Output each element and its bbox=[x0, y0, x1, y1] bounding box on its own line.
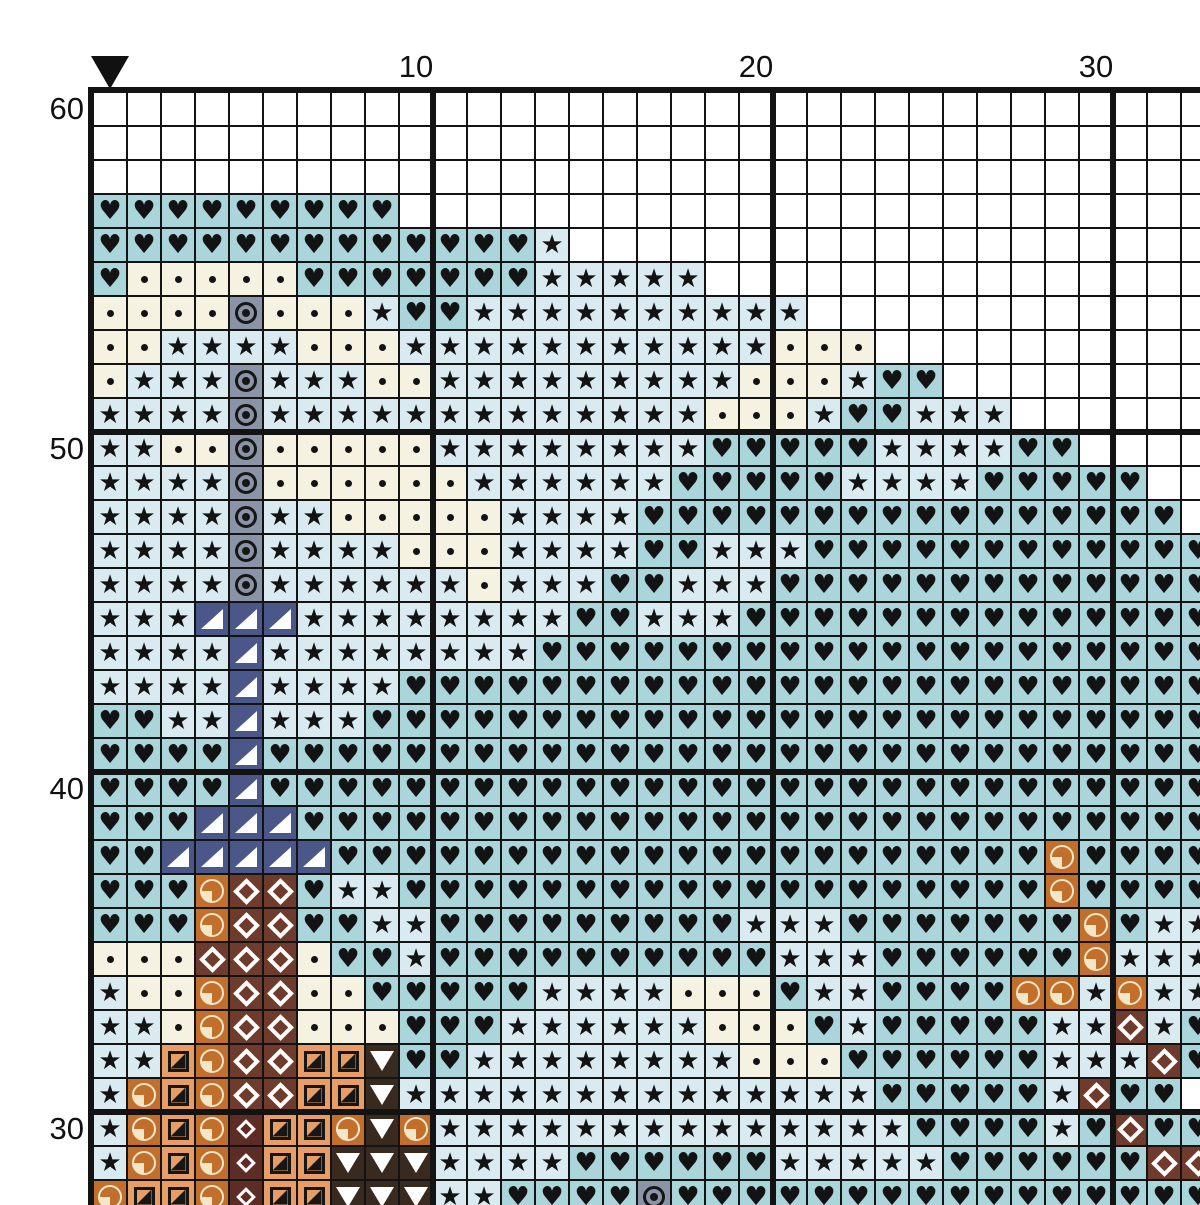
dot-symbol bbox=[209, 310, 216, 317]
stitch-cell-star: ★ bbox=[468, 603, 500, 635]
stitch-cell-quarter-pie bbox=[332, 1113, 364, 1145]
star-symbol: ★ bbox=[574, 467, 597, 499]
stitch-cell-dot bbox=[162, 433, 194, 465]
stitch-cell-star: ★ bbox=[94, 569, 126, 601]
stitch-cell-blank bbox=[536, 195, 568, 227]
stitch-cell-star: ★ bbox=[536, 433, 568, 465]
star-symbol: ★ bbox=[132, 569, 155, 601]
stitch-cell-star: ★ bbox=[94, 467, 126, 499]
heart-symbol: ♥ bbox=[1016, 773, 1039, 805]
heart-symbol: ♥ bbox=[1186, 1113, 1200, 1145]
heart-symbol: ♥ bbox=[98, 841, 121, 873]
heart-symbol: ♥ bbox=[132, 909, 155, 941]
stitch-cell-quarter-pie bbox=[1012, 977, 1044, 1009]
heart-symbol: ♥ bbox=[880, 943, 903, 975]
stitch-cell-heart: ♥ bbox=[366, 977, 398, 1009]
stitch-cell-star: ★ bbox=[808, 1113, 840, 1145]
stitch-cell-blank bbox=[1114, 161, 1146, 193]
stitch-cell-star: ★ bbox=[536, 535, 568, 567]
star-symbol: ★ bbox=[234, 331, 257, 363]
heart-symbol: ♥ bbox=[1152, 1113, 1175, 1145]
stitch-cell-heart: ♥ bbox=[434, 875, 466, 907]
stitch-cell-heart: ♥ bbox=[740, 637, 772, 669]
heart-symbol: ♥ bbox=[914, 773, 937, 805]
stitch-cell-star: ★ bbox=[434, 569, 466, 601]
stitch-cell-star: ★ bbox=[128, 501, 160, 533]
heart-symbol: ♥ bbox=[642, 637, 665, 669]
stitch-cell-heart: ♥ bbox=[1148, 671, 1180, 703]
stitch-cell-blank bbox=[1182, 127, 1200, 159]
stitch-cell-star: ★ bbox=[468, 433, 500, 465]
stitch-cell-heart: ♥ bbox=[128, 841, 160, 873]
star-symbol: ★ bbox=[302, 569, 325, 601]
heart-symbol: ♥ bbox=[914, 1079, 937, 1111]
stitch-cell-dot bbox=[230, 263, 262, 295]
heart-symbol: ♥ bbox=[948, 943, 971, 975]
stitch-cell-heart: ♥ bbox=[1114, 841, 1146, 873]
heart-symbol: ♥ bbox=[914, 1113, 937, 1145]
star-symbol: ★ bbox=[98, 433, 121, 465]
heart-symbol: ♥ bbox=[710, 705, 733, 737]
heart-symbol: ♥ bbox=[778, 841, 801, 873]
corner-triangle-symbol bbox=[235, 779, 257, 799]
star-symbol: ★ bbox=[1118, 1045, 1141, 1077]
stitch-cell-heart: ♥ bbox=[1114, 637, 1146, 669]
stitch-cell-heart: ♥ bbox=[944, 739, 976, 771]
stitch-cell-blank bbox=[808, 127, 840, 159]
dot-symbol bbox=[855, 344, 862, 351]
stitch-cell-heart: ♥ bbox=[910, 977, 942, 1009]
quarter-pie-symbol bbox=[200, 1049, 224, 1073]
star-symbol: ★ bbox=[540, 1147, 563, 1179]
stitch-cell-blank bbox=[706, 195, 738, 227]
heart-symbol: ♥ bbox=[132, 841, 155, 873]
dot-symbol bbox=[787, 412, 794, 419]
stitch-cell-star: ★ bbox=[944, 399, 976, 431]
stitch-cell-heart: ♥ bbox=[332, 807, 364, 839]
stitch-cell-small-diamond-outline bbox=[230, 1181, 262, 1205]
heart-symbol: ♥ bbox=[336, 195, 359, 227]
stitch-cell-heart: ♥ bbox=[1182, 773, 1200, 805]
stitch-cell-heart: ♥ bbox=[502, 739, 534, 771]
stitch-cell-heart: ♥ bbox=[978, 1181, 1010, 1205]
stitch-cell-blank bbox=[910, 263, 942, 295]
stitch-cell-star: ★ bbox=[162, 501, 194, 533]
stitch-cell-blank bbox=[434, 195, 466, 227]
stitch-cell-star: ★ bbox=[128, 569, 160, 601]
dot-symbol bbox=[753, 1058, 760, 1065]
stitch-cell-heart: ♥ bbox=[1046, 1147, 1078, 1179]
stitch-cell-heart: ♥ bbox=[128, 195, 160, 227]
stitch-cell-dot bbox=[400, 467, 432, 499]
stitch-cell-blank bbox=[298, 127, 330, 159]
stitch-cell-heart: ♥ bbox=[434, 229, 466, 261]
star-symbol: ★ bbox=[948, 433, 971, 465]
stitch-cell-star: ★ bbox=[162, 331, 194, 363]
stitch-cell-heart: ♥ bbox=[774, 501, 806, 533]
heart-symbol: ♥ bbox=[472, 1011, 495, 1043]
star-symbol: ★ bbox=[200, 399, 223, 431]
stitch-cell-heart: ♥ bbox=[1182, 875, 1200, 907]
stitch-cell-blank bbox=[706, 263, 738, 295]
heart-symbol: ♥ bbox=[642, 1147, 665, 1179]
stitch-cell-corner-triangle bbox=[230, 637, 262, 669]
stitch-cell-heart: ♥ bbox=[1046, 705, 1078, 737]
stitch-cell-blank bbox=[842, 93, 874, 125]
stitch-cell-star: ★ bbox=[536, 1113, 568, 1145]
stitch-cell-heart: ♥ bbox=[434, 705, 466, 737]
stitch-cell-blank bbox=[706, 229, 738, 261]
stitch-cell-heart: ♥ bbox=[842, 909, 874, 941]
heart-symbol: ♥ bbox=[234, 229, 257, 261]
star-symbol: ★ bbox=[574, 1079, 597, 1111]
stitch-cell-quarter-pie bbox=[128, 1079, 160, 1111]
stitch-cell-diamond-outline bbox=[264, 977, 296, 1009]
stitch-cell-star: ★ bbox=[400, 399, 432, 431]
stitch-cell-dot bbox=[128, 943, 160, 975]
stitch-cell-blank bbox=[978, 229, 1010, 261]
heart-symbol: ♥ bbox=[438, 263, 461, 295]
heart-symbol: ♥ bbox=[608, 1181, 631, 1205]
stitch-cell-star: ★ bbox=[536, 365, 568, 397]
star-symbol: ★ bbox=[540, 501, 563, 533]
star-symbol: ★ bbox=[506, 569, 529, 601]
heart-symbol: ♥ bbox=[948, 569, 971, 601]
stitch-cell-heart: ♥ bbox=[468, 263, 500, 295]
heart-symbol: ♥ bbox=[166, 773, 189, 805]
heart-symbol: ♥ bbox=[710, 841, 733, 873]
stitch-cell-star: ★ bbox=[298, 705, 330, 737]
heart-symbol: ♥ bbox=[574, 909, 597, 941]
stitch-cell-small-diamond-outline bbox=[230, 1113, 262, 1145]
stitch-cell-dot bbox=[808, 331, 840, 363]
stitch-cell-diamond-outline bbox=[230, 1011, 262, 1043]
heart-symbol: ♥ bbox=[880, 807, 903, 839]
stitch-cell-star: ★ bbox=[774, 943, 806, 975]
heart-symbol: ♥ bbox=[676, 1181, 699, 1205]
heart-symbol: ♥ bbox=[744, 1181, 767, 1205]
heart-symbol: ♥ bbox=[574, 841, 597, 873]
stitch-cell-heart: ♥ bbox=[842, 739, 874, 771]
stitch-cell-heart: ♥ bbox=[332, 841, 364, 873]
dot-symbol bbox=[413, 548, 420, 555]
diamond-outline-symbol bbox=[233, 1014, 260, 1041]
heart-symbol: ♥ bbox=[948, 807, 971, 839]
stitch-cell-heart: ♥ bbox=[774, 705, 806, 737]
heart-symbol: ♥ bbox=[608, 705, 631, 737]
quarter-pie-symbol bbox=[1016, 981, 1040, 1005]
heart-symbol: ♥ bbox=[1084, 841, 1107, 873]
dot-symbol bbox=[447, 480, 454, 487]
star-symbol: ★ bbox=[370, 569, 393, 601]
stitch-cell-star: ★ bbox=[536, 1147, 568, 1179]
stitch-cell-heart: ♥ bbox=[774, 433, 806, 465]
heart-symbol: ♥ bbox=[744, 433, 767, 465]
star-symbol: ★ bbox=[914, 433, 937, 465]
stitch-cell-star: ★ bbox=[434, 1113, 466, 1145]
star-symbol: ★ bbox=[132, 1011, 155, 1043]
star-symbol: ★ bbox=[404, 331, 427, 363]
stitch-cell-dot bbox=[332, 977, 364, 1009]
heart-symbol: ♥ bbox=[438, 705, 461, 737]
stitch-cell-blank bbox=[910, 93, 942, 125]
dot-symbol bbox=[345, 310, 352, 317]
stitch-cell-blank bbox=[604, 195, 636, 227]
star-symbol: ★ bbox=[506, 1045, 529, 1077]
heart-symbol: ♥ bbox=[506, 977, 529, 1009]
heart-symbol: ♥ bbox=[1084, 807, 1107, 839]
stitch-cell-star: ★ bbox=[740, 535, 772, 567]
star-symbol: ★ bbox=[506, 603, 529, 635]
stitch-cell-star: ★ bbox=[298, 535, 330, 567]
stitch-cell-heart: ♥ bbox=[638, 875, 670, 907]
heart-symbol: ♥ bbox=[132, 195, 155, 227]
stitch-cell-heart: ♥ bbox=[604, 569, 636, 601]
stitch-cell-star: ★ bbox=[1046, 1045, 1078, 1077]
heart-symbol: ♥ bbox=[404, 263, 427, 295]
stitch-cell-blank bbox=[910, 297, 942, 329]
star-symbol: ★ bbox=[846, 467, 869, 499]
stitch-cell-heart: ♥ bbox=[876, 807, 908, 839]
stitch-cell-blank bbox=[910, 127, 942, 159]
stitch-cell-heart: ♥ bbox=[94, 705, 126, 737]
stitch-cell-blank bbox=[1148, 467, 1180, 499]
heart-symbol: ♥ bbox=[1016, 467, 1039, 499]
stitch-cell-blank bbox=[196, 93, 228, 125]
stitch-cell-dot bbox=[298, 943, 330, 975]
stitch-cell-star: ★ bbox=[536, 1045, 568, 1077]
stitch-cell-star: ★ bbox=[128, 1045, 160, 1077]
heart-symbol: ♥ bbox=[1050, 501, 1073, 533]
star-symbol: ★ bbox=[642, 433, 665, 465]
stitch-cell-heart: ♥ bbox=[604, 1147, 636, 1179]
star-symbol: ★ bbox=[574, 1011, 597, 1043]
quarter-pie-symbol bbox=[200, 1117, 224, 1141]
heart-symbol: ♥ bbox=[608, 637, 631, 669]
stitch-cell-star: ★ bbox=[536, 331, 568, 363]
stitch-cell-blank bbox=[1046, 195, 1078, 227]
stitch-cell-heart: ♥ bbox=[400, 739, 432, 771]
stitch-cell-heart: ♥ bbox=[1080, 501, 1112, 533]
stitch-cell-heart: ♥ bbox=[944, 603, 976, 635]
stitch-cell-star: ★ bbox=[842, 943, 874, 975]
stitch-cell-blank bbox=[808, 93, 840, 125]
stitch-cell-heart: ♥ bbox=[944, 773, 976, 805]
stitch-cell-heart: ♥ bbox=[332, 195, 364, 227]
stitch-cell-heart: ♥ bbox=[536, 773, 568, 805]
stitch-cell-diamond-outline bbox=[1182, 1147, 1200, 1179]
stitch-cell-star: ★ bbox=[808, 943, 840, 975]
stitch-cell-heart: ♥ bbox=[366, 773, 398, 805]
star-symbol: ★ bbox=[98, 501, 121, 533]
diamond-outline-symbol bbox=[233, 912, 260, 939]
heart-symbol: ♥ bbox=[676, 637, 699, 669]
heart-symbol: ♥ bbox=[948, 977, 971, 1009]
stitch-cell-heart: ♥ bbox=[1012, 1181, 1044, 1205]
stitch-cell-quarter-pie bbox=[1080, 909, 1112, 941]
dot-symbol bbox=[277, 276, 284, 283]
heart-symbol: ♥ bbox=[438, 1011, 461, 1043]
heart-symbol: ♥ bbox=[982, 1113, 1005, 1145]
heart-symbol: ♥ bbox=[370, 841, 393, 873]
heart-symbol: ♥ bbox=[1152, 807, 1175, 839]
stitch-cell-star: ★ bbox=[196, 467, 228, 499]
stitch-cell-heart: ♥ bbox=[1012, 433, 1044, 465]
stitch-cell-star: ★ bbox=[570, 1113, 602, 1145]
stitch-cell-star: ★ bbox=[502, 569, 534, 601]
heart-symbol: ♥ bbox=[1186, 569, 1200, 601]
heart-symbol: ♥ bbox=[1016, 569, 1039, 601]
stitch-cell-heart: ♥ bbox=[1046, 467, 1078, 499]
stitch-cell-heart: ♥ bbox=[672, 807, 704, 839]
stitch-cell-star: ★ bbox=[706, 331, 738, 363]
heart-symbol: ♥ bbox=[1186, 1181, 1200, 1205]
stitch-cell-heart: ♥ bbox=[1148, 569, 1180, 601]
heart-symbol: ♥ bbox=[846, 1181, 869, 1205]
heart-symbol: ♥ bbox=[540, 671, 563, 703]
stitch-cell-down-triangle bbox=[366, 1079, 398, 1111]
corner-triangle-symbol bbox=[235, 813, 257, 833]
stitch-cell-star: ★ bbox=[502, 501, 534, 533]
heart-symbol: ♥ bbox=[472, 263, 495, 295]
stitch-cell-heart: ♥ bbox=[536, 1181, 568, 1205]
heart-symbol: ♥ bbox=[982, 1147, 1005, 1179]
heart-symbol: ♥ bbox=[744, 671, 767, 703]
stitch-cell-star: ★ bbox=[672, 1045, 704, 1077]
stitch-cell-heart: ♥ bbox=[468, 671, 500, 703]
stitch-cell-star: ★ bbox=[638, 365, 670, 397]
heart-symbol: ♥ bbox=[1186, 1011, 1200, 1043]
stitch-cell-star: ★ bbox=[944, 433, 976, 465]
stitch-cell-heart: ♥ bbox=[570, 705, 602, 737]
stitch-cell-heart: ♥ bbox=[808, 433, 840, 465]
star-symbol: ★ bbox=[812, 1147, 835, 1179]
stitch-cell-heart: ♥ bbox=[1148, 535, 1180, 567]
star-symbol: ★ bbox=[710, 365, 733, 397]
star-symbol: ★ bbox=[302, 365, 325, 397]
stitch-cell-star: ★ bbox=[332, 365, 364, 397]
stitch-cell-heart: ♥ bbox=[978, 773, 1010, 805]
stitch-cell-heart: ♥ bbox=[740, 1147, 772, 1179]
star-symbol: ★ bbox=[98, 671, 121, 703]
stitch-cell-heart: ♥ bbox=[1046, 671, 1078, 703]
star-symbol: ★ bbox=[132, 399, 155, 431]
stitch-cell-heart: ♥ bbox=[808, 501, 840, 533]
star-symbol: ★ bbox=[676, 1045, 699, 1077]
stitch-cell-star: ★ bbox=[468, 467, 500, 499]
stitch-cell-star: ★ bbox=[128, 365, 160, 397]
dot-symbol bbox=[277, 446, 284, 453]
stitch-cell-quarter-pie bbox=[1080, 943, 1112, 975]
star-symbol: ★ bbox=[540, 977, 563, 1009]
stitch-cell-heart: ♥ bbox=[434, 1011, 466, 1043]
stitch-cell-heart: ♥ bbox=[1012, 467, 1044, 499]
heart-symbol: ♥ bbox=[812, 637, 835, 669]
stitch-cell-heart: ♥ bbox=[1114, 535, 1146, 567]
stitch-cell-star: ★ bbox=[808, 399, 840, 431]
stitch-cell-star: ★ bbox=[298, 637, 330, 669]
stitch-cell-star: ★ bbox=[672, 1011, 704, 1043]
stitch-cell-star: ★ bbox=[434, 603, 466, 635]
heart-symbol: ♥ bbox=[812, 535, 835, 567]
star-symbol: ★ bbox=[472, 1079, 495, 1111]
heart-symbol: ♥ bbox=[982, 841, 1005, 873]
heart-symbol: ♥ bbox=[608, 739, 631, 771]
stitch-cell-heart: ♥ bbox=[978, 1147, 1010, 1179]
stitch-cell-heart: ♥ bbox=[162, 807, 194, 839]
heart-symbol: ♥ bbox=[812, 467, 835, 499]
stitch-cell-blank bbox=[1148, 93, 1180, 125]
stitch-cell-star: ★ bbox=[128, 535, 160, 567]
heart-symbol: ♥ bbox=[948, 1079, 971, 1111]
stitch-cell-heart: ♥ bbox=[94, 195, 126, 227]
stitch-cell-star: ★ bbox=[808, 1147, 840, 1179]
stitch-cell-heart: ♥ bbox=[162, 195, 194, 227]
stitch-cell-heart: ♥ bbox=[502, 841, 534, 873]
heart-symbol: ♥ bbox=[166, 875, 189, 907]
star-symbol: ★ bbox=[404, 637, 427, 669]
stitch-cell-star: ★ bbox=[672, 331, 704, 363]
stitch-cell-blank bbox=[366, 127, 398, 159]
heart-symbol: ♥ bbox=[1118, 705, 1141, 737]
stitch-cell-dot bbox=[128, 297, 160, 329]
stitch-cell-dot bbox=[808, 1045, 840, 1077]
dot-symbol bbox=[107, 956, 114, 963]
dot-symbol bbox=[821, 378, 828, 385]
heart-symbol: ♥ bbox=[1084, 501, 1107, 533]
stitch-cell-heart: ♥ bbox=[944, 977, 976, 1009]
stitch-cell-heart: ♥ bbox=[1182, 1113, 1200, 1145]
stitch-cell-star: ★ bbox=[434, 1181, 466, 1205]
stitch-cell-blank bbox=[740, 127, 772, 159]
heart-symbol: ♥ bbox=[778, 501, 801, 533]
heart-symbol: ♥ bbox=[404, 807, 427, 839]
stitch-cell-star: ★ bbox=[94, 1147, 126, 1179]
dot-symbol bbox=[481, 514, 488, 521]
heart-symbol: ♥ bbox=[1016, 739, 1039, 771]
stitch-cell-star: ★ bbox=[332, 603, 364, 635]
star-symbol: ★ bbox=[472, 637, 495, 669]
stitch-cell-star: ★ bbox=[706, 1079, 738, 1111]
heart-symbol: ♥ bbox=[1050, 569, 1073, 601]
stitch-cell-blank bbox=[1046, 399, 1078, 431]
stitch-cell-heart: ♥ bbox=[400, 773, 432, 805]
stitch-cell-dot bbox=[298, 331, 330, 363]
stitch-cell-heart: ♥ bbox=[910, 943, 942, 975]
star-symbol: ★ bbox=[948, 467, 971, 499]
stitch-cell-blank bbox=[1148, 297, 1180, 329]
stitch-cell-blank bbox=[162, 127, 194, 159]
stitch-cell-blank bbox=[1012, 93, 1044, 125]
star-symbol: ★ bbox=[744, 1079, 767, 1111]
heart-symbol: ♥ bbox=[880, 671, 903, 703]
half-square-symbol bbox=[338, 1085, 359, 1106]
stitch-cell-star: ★ bbox=[94, 1045, 126, 1077]
heart-symbol: ♥ bbox=[880, 535, 903, 567]
stitch-cell-star: ★ bbox=[604, 365, 636, 397]
heart-symbol: ♥ bbox=[506, 705, 529, 737]
star-symbol: ★ bbox=[438, 399, 461, 431]
star-symbol: ★ bbox=[676, 331, 699, 363]
heart-symbol: ♥ bbox=[438, 229, 461, 261]
heart-symbol: ♥ bbox=[472, 875, 495, 907]
heart-symbol: ♥ bbox=[744, 501, 767, 533]
stitch-cell-blank bbox=[400, 195, 432, 227]
stitch-cell-corner-triangle bbox=[230, 705, 262, 737]
heart-symbol: ♥ bbox=[608, 875, 631, 907]
heart-symbol: ♥ bbox=[948, 705, 971, 737]
stitch-cell-blank bbox=[842, 297, 874, 329]
